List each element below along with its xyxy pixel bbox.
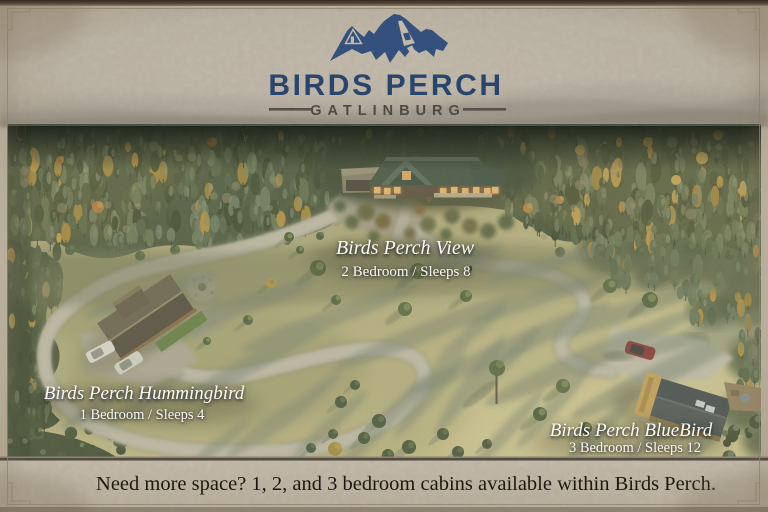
svg-text:GATLINBURG: GATLINBURG [310,103,466,119]
svg-text:Need more space? 1, 2, and 3 b: Need more space? 1, 2, and 3 bedroom cab… [96,473,716,495]
svg-text:BIRDS PERCH: BIRDS PERCH [268,69,503,102]
